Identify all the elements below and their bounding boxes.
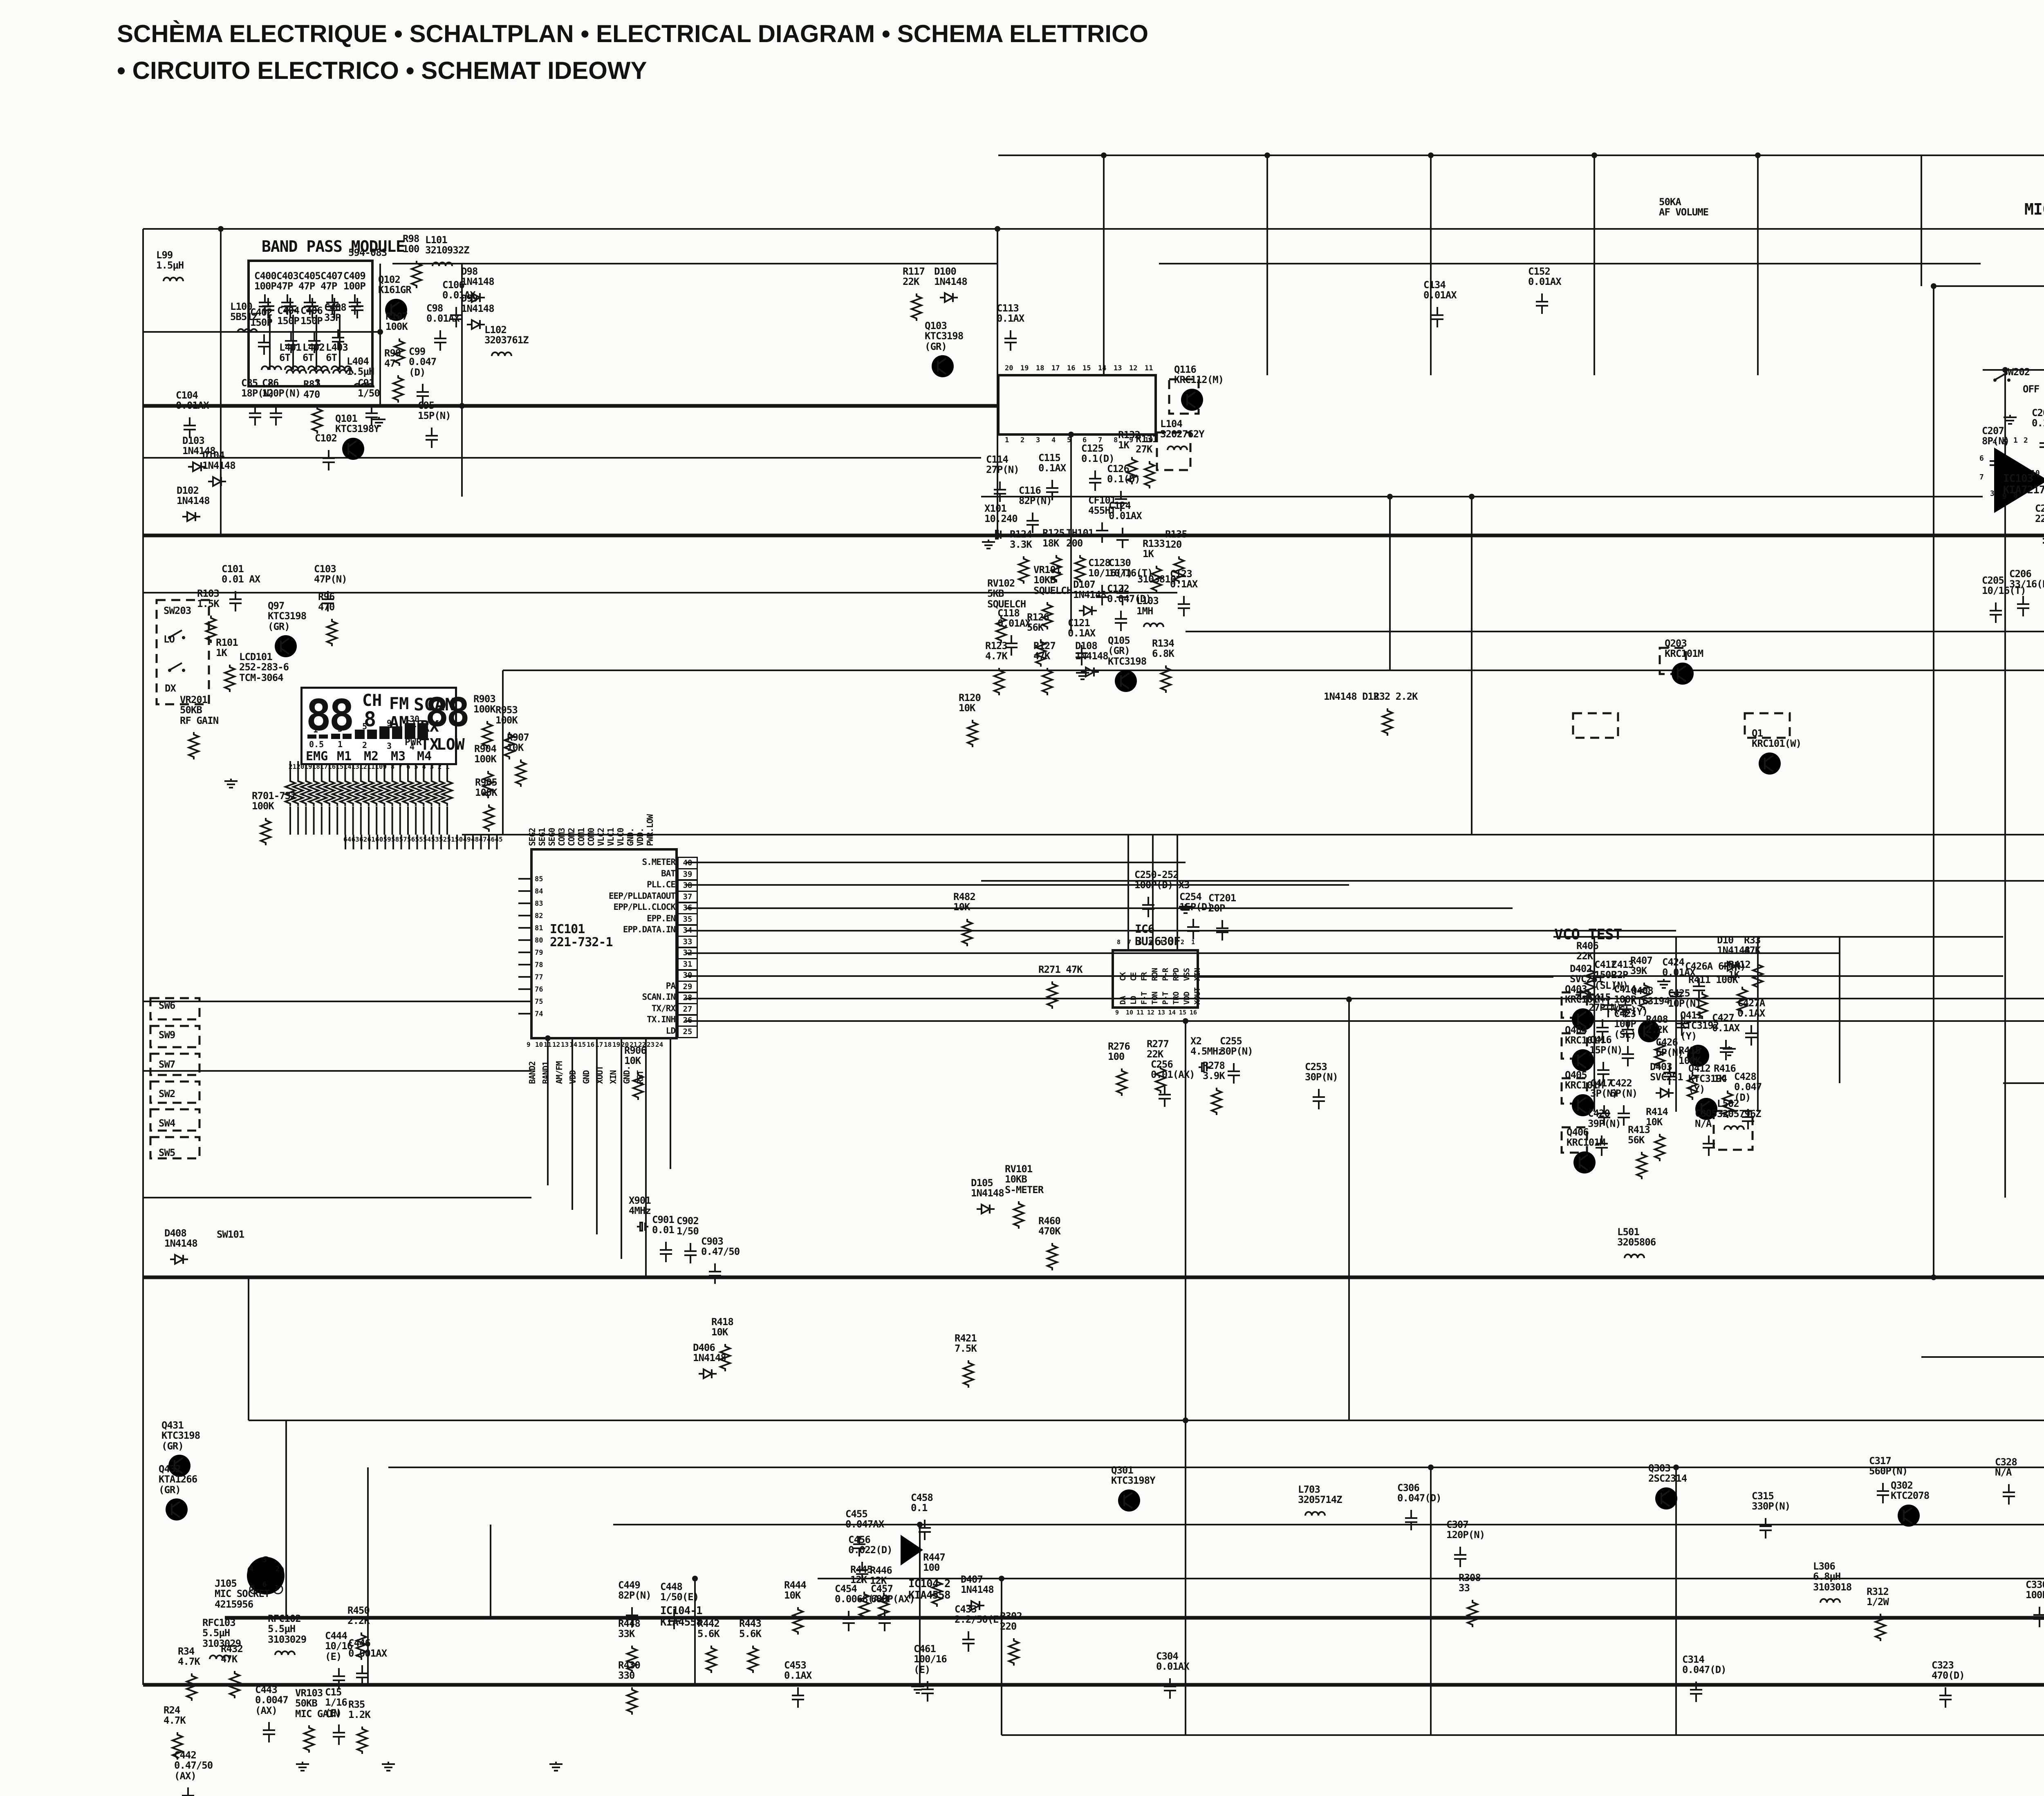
component-label: R278 3.9K — [1203, 1061, 1225, 1082]
ic-pin-number: 50 — [455, 836, 463, 843]
ic-pin-number: 2 — [1020, 437, 1024, 444]
component-label: Q203 KRC101M — [1665, 638, 1703, 659]
component-label: C449 82P(N) — [618, 1580, 651, 1601]
component-label: R117 22K — [903, 266, 925, 287]
ic-pin-number: 10 — [375, 764, 383, 770]
ic-pin-number: 63 — [352, 836, 359, 843]
ic-pin-number: 80 — [535, 937, 543, 944]
ic-pin-number: 7 — [1098, 437, 1102, 444]
component-label: R903 100K — [473, 694, 495, 715]
component-label: X101 10.240 — [984, 504, 1018, 524]
component-label: C433 2.2/50(E) — [955, 1604, 1004, 1625]
component-label: R277 22K — [1147, 1039, 1169, 1060]
sig-bar — [343, 734, 352, 739]
component-label: SW9 — [159, 1030, 175, 1040]
component-label: SW4 — [159, 1118, 175, 1129]
ic-pin-label: COM2 — [567, 828, 576, 846]
ic-pin-number: 16 — [328, 764, 336, 770]
component-label: Q102 K161GR — [378, 275, 411, 296]
component-label: C317 560P(N) — [1869, 1456, 1907, 1477]
component-label: C253 30P(N) — [1305, 1062, 1338, 1083]
ic-pin-number: 13 — [352, 764, 359, 770]
component-label: C416 15P(N) — [1589, 1035, 1623, 1056]
ic101-pin-number: 29 — [677, 981, 698, 993]
ic-pin-label: P-R — [1161, 968, 1170, 981]
ic-pin-number: 10 — [1145, 437, 1153, 444]
component-label: C420 39P(N) — [1588, 1109, 1621, 1129]
ic101-pin-number: 35 — [677, 913, 698, 926]
component-label: C254 15P(D) — [1179, 892, 1213, 913]
component-label: Q408 KTC3194 (Y) — [1631, 986, 1670, 1017]
ic-pin-label: VSS — [1182, 968, 1191, 981]
ic-pin-number: 14 — [343, 764, 351, 770]
component-label: Q301 KTC3198Y — [1111, 1465, 1155, 1486]
component-label: R33 47K — [1744, 935, 1760, 956]
ic-pin-number: 14 — [569, 1041, 577, 1048]
component-label: C214 220P(N) — [2035, 504, 2044, 524]
component-label: Q101 KTC3198Y — [335, 414, 379, 434]
ic-pin-number: 15 — [336, 764, 343, 770]
component-label: C123 0.1AX — [1170, 569, 1197, 590]
component-label: 5 — [2003, 438, 2008, 446]
component-label: L502 3205796Z — [1717, 1099, 1761, 1120]
component-label: LO — [164, 634, 175, 645]
component-label: C406 150P — [300, 306, 323, 327]
ic-pin-number: 19 — [612, 1041, 620, 1048]
ic-pin-number: 58 — [391, 836, 399, 843]
component-label: Q105 (GR) KTC3198 — [1108, 636, 1146, 667]
component-label: C307 120P(N) — [1446, 1520, 1485, 1541]
component-label: L403 6T — [326, 343, 348, 363]
ic-pin-number: 77 — [535, 974, 543, 981]
scale-bot: 2 — [362, 740, 367, 750]
ic-pin-label: RST — [635, 1070, 645, 1084]
ic-pin-number: 20 — [621, 1041, 629, 1048]
component-label: R120 10K — [959, 693, 981, 714]
component-label: SW2 — [159, 1089, 175, 1099]
ic-pin-label: BAND1 — [541, 1061, 551, 1084]
component-label: C205 10/16(T) — [1982, 576, 2026, 596]
component-label: C403 47P — [276, 271, 298, 292]
component-label: C427A 0.1AX — [1737, 998, 1765, 1019]
ic-pin-label: GND — [581, 1070, 591, 1084]
component-label: R407 39K — [1630, 956, 1652, 976]
component-label: C446 0.001AX — [348, 1638, 387, 1659]
ic-pin-label: GND. — [625, 828, 635, 846]
component-label: C323 470(D) — [1932, 1660, 1965, 1681]
ic-pin-number: 23 — [647, 1041, 654, 1048]
component-label: C116 82P(N) — [1019, 486, 1052, 506]
ic-pin-number: 62 — [359, 836, 367, 843]
component-label: RFC102 5.5μH 3103029 — [268, 1614, 306, 1645]
ic101-pin-number: 36 — [677, 902, 698, 914]
ic-pin-number: 64 — [343, 836, 351, 843]
component-label: R127 47K — [1033, 641, 1056, 662]
component-label: R421 7.5K — [955, 1333, 977, 1354]
component-label: C427 0.1AX — [1712, 1013, 1739, 1034]
component-label: 50KA AF VOLUME — [1659, 197, 1708, 218]
component-label: 2 — [276, 1565, 280, 1573]
component-label: C456 0.022(D) — [848, 1535, 892, 1556]
component-label: Q303 2SC2314 — [1648, 1463, 1687, 1484]
component-label: C91 1/50 — [358, 378, 380, 399]
ic-pin-number: 3 — [1036, 437, 1040, 444]
component-label: L306 6.8μH 3103018 — [1813, 1561, 1851, 1592]
component-label: C448 1/50(E) — [660, 1582, 699, 1603]
ic-pin-label: XIN — [1193, 968, 1202, 981]
component-label: R443 5.6K — [739, 1619, 761, 1639]
ic-pin-number: 46 — [487, 836, 495, 843]
ic-pin-label: CE — [1129, 972, 1138, 981]
ic-pin-label: COM1 — [576, 828, 586, 846]
ic-pin-number: 13 — [1114, 365, 1122, 372]
component-label: C455 0.047AX — [845, 1509, 884, 1530]
ic101-pin-number: 27 — [677, 1003, 698, 1016]
component-label: R276 100 — [1108, 1041, 1130, 1062]
component-label: IC104-1 KIA4558 — [660, 1606, 702, 1628]
ic-pin-label: TON — [1150, 992, 1159, 1005]
ic101-pin-name: EEP/PLLDATAOUT — [500, 891, 675, 901]
ic-pin-number: 21 — [289, 764, 296, 770]
ic-pin-label: RON — [1150, 968, 1159, 981]
ic-pin-number: 9 — [1129, 437, 1133, 444]
ic101-pin-number: 38 — [677, 879, 698, 892]
ic-pin-number: 19 — [304, 764, 312, 770]
component-label: C901 0.01 — [652, 1215, 674, 1236]
ic-pin-number: 21 — [630, 1041, 637, 1048]
sig-bar — [379, 726, 390, 739]
component-label: R271 47K — [1038, 965, 1083, 975]
component-label: C101 0.01 AX — [222, 564, 260, 585]
component-label: 6 — [1979, 455, 1984, 462]
component-label: SW101 — [217, 1229, 244, 1240]
component-label: R312 1/2W — [1867, 1587, 1889, 1608]
component-label: C98 0.01AX — [426, 303, 459, 324]
ic-pin-number: 5 — [1067, 437, 1071, 444]
component-label: RV101 10KB S-METER — [1005, 1164, 1043, 1195]
component-label: DX — [165, 683, 176, 694]
ic-pin-number: 4 — [1051, 437, 1056, 444]
component-label: 6 — [262, 1581, 267, 1588]
ic-pin-label: XOUT — [595, 1066, 605, 1084]
component-label: R907 10K — [507, 732, 529, 753]
component-label: D403 SVC251 — [1650, 1062, 1683, 1083]
wire-layer — [0, 0, 2044, 1796]
fm-flag: FM — [389, 694, 409, 713]
component-label: D104 1N4148 — [202, 450, 235, 471]
ic-pin-number: 12 — [359, 764, 367, 770]
component-label: R99 47 — [384, 348, 401, 369]
component-label: C453 0.1AX — [784, 1660, 811, 1681]
component-label: C442 0.47/50 (AX) — [174, 1750, 213, 1781]
component-label: C306 0.047(D) — [1397, 1483, 1441, 1504]
ic-pin-number: 18 — [1036, 365, 1044, 372]
component-label: R308 33 — [1459, 1573, 1481, 1594]
component-label: R447 100 — [923, 1552, 945, 1573]
component-label: L401 6T — [279, 343, 301, 363]
component-label: R432 47K — [221, 1644, 243, 1665]
ic-pin-number: 11 — [544, 1041, 551, 1048]
mem-m2: M2 — [364, 749, 379, 764]
scale-top: 9 — [387, 718, 392, 728]
ic-pin-label: VDD — [568, 1070, 578, 1084]
ic101-pin-number: 30 — [677, 969, 698, 982]
component-label: C400 100P — [254, 271, 276, 292]
ic-pin-label: FR — [1140, 972, 1149, 981]
component-label: C124 0.01AX — [1109, 501, 1142, 522]
ic101-pin-number: 31 — [677, 958, 698, 971]
component-label: R35 1.2K — [348, 1700, 370, 1720]
mem-emg: EMG — [306, 749, 328, 764]
page-title-line1: SCHÈMA ELECTRIQUE • SCHALTPLAN • ELECTRI… — [117, 20, 1148, 48]
ic-pin-number: 15 — [578, 1041, 586, 1048]
scale-top: 5 — [362, 721, 367, 731]
ic-pin-number: 54 — [423, 836, 431, 843]
component-label: L101 3210932Z — [425, 235, 469, 256]
ic-pin-number: 10 — [1126, 1010, 1133, 1016]
component-label: R98 100 — [403, 234, 419, 255]
ic101-pin-name: EPP/PLL.CLOCK — [500, 902, 675, 912]
scale-bot: 4 — [410, 742, 415, 752]
component-label: R134 6.8K — [1152, 638, 1174, 659]
sig-bar — [405, 723, 415, 739]
ic-pin-number: 2 — [1181, 939, 1184, 946]
component-label: R96 470 — [318, 592, 334, 613]
component-label: C126 0.1(D) — [1107, 464, 1140, 485]
component-label: 1 — [275, 1584, 279, 1592]
component-label: R101 1K — [216, 638, 238, 658]
ic-pin-number: 16 — [587, 1041, 594, 1048]
component-label: 9 — [2002, 493, 2007, 500]
ic-pin-label: VLC1 — [606, 828, 616, 846]
ic-pin-number: 1 — [1005, 437, 1009, 444]
ic-pin-label: BAND2 — [527, 1061, 537, 1084]
ic-pin-label: TRO — [1172, 992, 1181, 1005]
component-label: R482 10K — [953, 892, 975, 913]
ic-pin-label: SEG0 — [547, 828, 557, 846]
ic-pin-label: COM3 — [557, 828, 567, 846]
component-label: R408 2.2K — [1646, 1014, 1668, 1035]
component-label: IC104-2 KIA4558 — [908, 1579, 950, 1601]
ic-pin-number: 8 — [1114, 437, 1118, 444]
ic-pin-number: 7 — [1127, 939, 1131, 946]
component-label: Q302 KTC2078 — [1891, 1480, 1929, 1501]
sig-bar — [367, 730, 377, 739]
ic-pin-number: 3 — [1170, 939, 1174, 946]
ic-pin-number: 47 — [479, 836, 487, 843]
component-label: C114 27P(N) — [986, 455, 1019, 475]
component-label: L104 3202762Y — [1160, 419, 1204, 440]
component-label: 5 — [251, 1584, 255, 1592]
component-label: C104 0.01AX — [176, 390, 209, 411]
ic-pin-label: GND.. — [622, 1061, 632, 1084]
component-label: R418 10K — [711, 1317, 733, 1338]
component-label: Q103 KTC3198 (GR) — [925, 321, 963, 352]
sig-bar — [417, 723, 428, 739]
ic-pin-number: 24 — [655, 1041, 663, 1048]
component-label: C113 0.1AX — [997, 303, 1024, 324]
mem-m4: M4 — [417, 749, 432, 764]
ic-pin-number: 18 — [604, 1041, 612, 1048]
ic-pin-number: 8 — [391, 764, 395, 770]
ic-pin-label: DA — [1118, 996, 1127, 1005]
component-label: C328 N/A — [1995, 1457, 2017, 1478]
component-label: C103 47P(N) — [314, 564, 347, 585]
mem-m1: M1 — [337, 749, 352, 764]
low-label: LOW — [437, 735, 465, 753]
component-label: Q97 KTC3198 (GR) — [268, 601, 306, 632]
component-label: D408 1N4148 — [164, 1228, 197, 1249]
component-label: C408 33P — [324, 302, 346, 323]
component-label: R411 100K — [1688, 975, 1738, 985]
component-label: SW203 — [164, 606, 191, 616]
ic-pin-number: 52 — [439, 836, 447, 843]
component-label: C304 0.01AX — [1156, 1651, 1189, 1672]
ic-pin-number: 15 — [1179, 1010, 1186, 1016]
component-label: R905 100K — [475, 777, 497, 798]
component-label: SW202 — [2002, 367, 2030, 377]
ic101-pin-name: BAT — [500, 869, 675, 878]
ic-pin-label: COM0 — [586, 828, 596, 846]
channel-digits: 88 — [306, 690, 352, 740]
page-title-line2: • CIRCUITO ELECTRICO • SCHEMAT IDEOWY — [117, 56, 647, 85]
component-label: 2 — [2024, 437, 2028, 444]
ic101-pin-name: EPP.EN — [500, 914, 675, 923]
ic101-pin-number: 39 — [677, 868, 698, 881]
component-label: D99 1N4148 — [461, 293, 494, 314]
ic-pin-number: 16 — [1067, 365, 1075, 372]
ic-pin-number: 5 — [1149, 939, 1152, 946]
ic-pin-number: 8 — [1117, 939, 1121, 946]
component-label: R302 220 — [1000, 1611, 1022, 1632]
component-label: Q432 KTA1266 (GR) — [159, 1464, 197, 1495]
ic-pin-number: 6 — [1083, 437, 1087, 444]
ic-pin-number: 12 — [1129, 365, 1137, 372]
component-label: R416 1K — [1714, 1064, 1736, 1084]
component-label: R450 2.2K — [347, 1606, 370, 1626]
ic-pin-label: VDD — [1182, 992, 1191, 1005]
ic-pin-number: 48 — [471, 836, 479, 843]
component-label: L103 1MH — [1136, 596, 1159, 617]
component-label: C152 0.01AX — [1528, 266, 1561, 287]
ic-pin-number: 11 — [367, 764, 375, 770]
ic101-pin-number: 25 — [677, 1026, 698, 1038]
component-label: SW6 — [159, 1001, 175, 1011]
component-label: R460 470K — [1038, 1216, 1060, 1237]
component-label: C250-252 100P(D) X3 — [1134, 870, 1190, 891]
ic-pin-number: 78 — [535, 961, 543, 969]
component-label: R126 56K — [1027, 612, 1049, 633]
component-label: R135 120 — [1165, 529, 1187, 550]
component-label: R24 4.7K — [164, 1705, 186, 1726]
component-label: C314 0.047(D) — [1682, 1655, 1726, 1675]
ic101-pin-name: TX/RX — [500, 1003, 675, 1013]
component-label: R124 3.3K — [1010, 529, 1032, 550]
ic101-pin-name: LD — [500, 1026, 675, 1036]
component-label: D406 1N4148 — [693, 1343, 726, 1364]
ic-pin-number: 6 — [406, 764, 410, 770]
component-label: C315 330P(N) — [1752, 1491, 1790, 1512]
ic101-pin-number: 40 — [677, 857, 698, 869]
ic-pin-number: 2 — [438, 764, 442, 770]
ic-pin-number: 14 — [1168, 1010, 1176, 1016]
component-label: OFF — [2023, 384, 2039, 394]
component-label: C902 1/50 — [677, 1216, 699, 1237]
component-label: R34 4.7K — [178, 1646, 200, 1667]
component-label: 3 — [262, 1556, 267, 1564]
component-label: 8 — [2013, 491, 2018, 499]
ic-pin-number: 10 — [535, 1041, 543, 1048]
component-label: L100 5B51Z — [230, 302, 258, 322]
component-label: 594-083 — [348, 248, 387, 258]
lcd-display: 88 CH 8 FM AM SCAN 88 SIG PWR RX TX LOW … — [300, 687, 457, 765]
component-label: D107 1N4148 — [1073, 580, 1106, 600]
ic-pin-number: 12 — [1147, 1010, 1154, 1016]
scale-top: 3 — [338, 724, 343, 734]
component-label: C458 0.1 — [911, 1493, 933, 1514]
component-label: L99 1.5μH — [156, 250, 184, 271]
ic-pin-number: 1 — [1191, 939, 1195, 946]
component-label: D105 1N4148 — [971, 1178, 1004, 1199]
ic-pin-label: F-T — [1140, 992, 1149, 1005]
ic-pin-number: 6 — [1138, 939, 1142, 946]
component-label: C115 0.1AX — [1038, 453, 1066, 474]
component-label: D100 1N4148 — [934, 266, 967, 287]
schematic-sheet: SCHÈMA ELECTRIQUE • SCHALTPLAN • ELECTRI… — [0, 0, 2044, 1796]
ic-pin-number: 17 — [595, 1041, 603, 1048]
ic-pin-label: VLC2 — [596, 828, 606, 846]
component-label: C102 — [315, 433, 337, 443]
ic-pin-number: 9 — [383, 764, 387, 770]
component-label: Q431 KTC3198 (GR) — [161, 1420, 200, 1451]
component-label: C461 100/16 (E) — [914, 1644, 947, 1675]
component-label: SW7 — [159, 1059, 175, 1070]
component-label: R107 100K — [385, 311, 408, 332]
ic-pin-number: 79 — [535, 949, 543, 956]
component-label: L501 3205806 — [1617, 1227, 1656, 1248]
ic-pin-number: 17 — [1051, 365, 1060, 372]
component-label: Q406 KRC101M — [1567, 1127, 1605, 1148]
ic-pin-number: 51 — [447, 836, 455, 843]
mem-m3: M3 — [391, 749, 406, 764]
component-label: R904 100K — [474, 744, 496, 765]
ic-pin-number: 60 — [375, 836, 383, 843]
component-label: 10 — [2031, 469, 2040, 477]
ic-pin-number: 14 — [1098, 365, 1106, 372]
component-label: C409 100P — [343, 271, 365, 292]
sig-bar — [319, 735, 328, 739]
component-label: R430 330 — [618, 1660, 640, 1681]
ic-pin-number: 15 — [1083, 365, 1091, 372]
component-label: SW5 — [159, 1148, 175, 1158]
scale-bot: 0.5 — [309, 739, 324, 749]
component-label: Q116 KRC112(M) — [1174, 365, 1224, 385]
ic-pin-number: 1 — [446, 764, 450, 770]
component-label: L102 3203761Z — [484, 325, 529, 346]
ic-pin-number: 11 — [1145, 365, 1153, 372]
ic-pin-label: P-T — [1161, 992, 1170, 1005]
component-label: C256 0.01(AX) — [1151, 1059, 1195, 1080]
ic-pin-label: XIN — [608, 1070, 618, 1084]
component-label: C15 1/16 (E) — [325, 1687, 347, 1718]
ic-pin-number: 4 — [1159, 939, 1163, 946]
component-label: D108 1N4148 — [1075, 641, 1108, 662]
ic101-pin-number: 34 — [677, 924, 698, 937]
component-label: RV102 5KB SQUELCH — [987, 578, 1026, 609]
ic-pin-number: 9 — [1115, 1010, 1119, 1016]
component-label: R125 18K — [1042, 528, 1065, 549]
ic-pin-label: VLC0 — [616, 828, 625, 846]
